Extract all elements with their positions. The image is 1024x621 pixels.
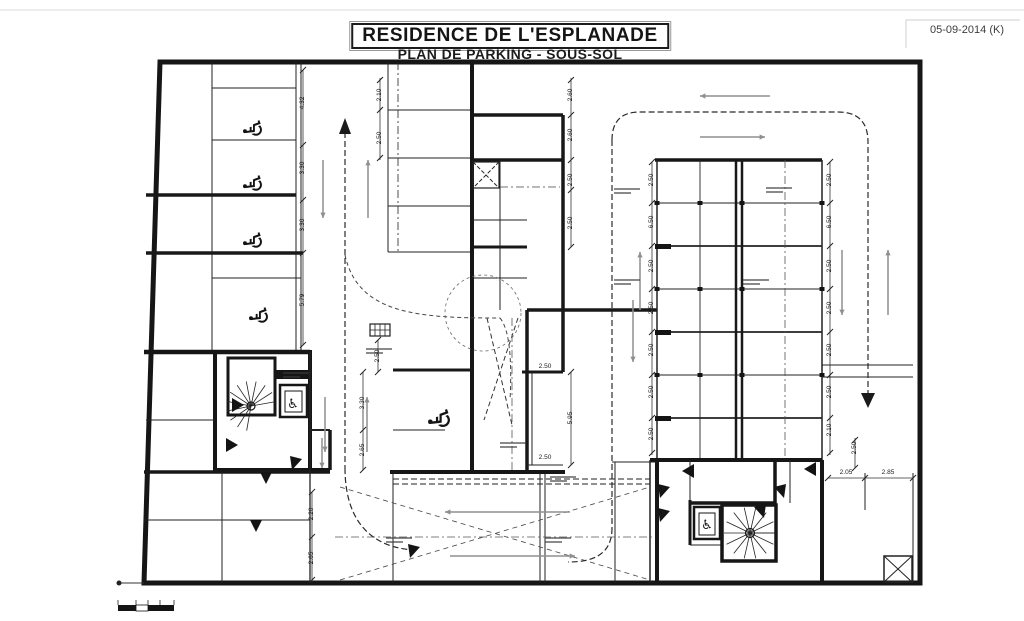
door-swing — [226, 438, 238, 452]
dimension-label: 2.85 — [882, 470, 895, 477]
wheelchair-icon: ♿ — [239, 228, 269, 251]
dimension-label: 2.10 — [377, 89, 384, 102]
direction-arrowhead — [839, 310, 844, 315]
direction-arrowhead — [319, 463, 324, 468]
dimension-label: 2.50 — [539, 364, 552, 371]
dimension-label: 2.50 — [827, 386, 834, 399]
bottom-ramp-zone — [335, 460, 657, 583]
floor-drain-grate — [370, 324, 390, 336]
dimension-label: 2.50 — [852, 442, 859, 455]
direction-arrowhead — [630, 357, 635, 362]
dimension-label: 2.50 — [649, 428, 656, 441]
dimension-label: 5.95 — [568, 412, 575, 425]
dimension-label: 2.50 — [649, 302, 656, 315]
dimension-label: 2.65 — [309, 552, 316, 565]
dimension-label: 2.50 — [568, 174, 575, 187]
dimension-label: 3.30 — [300, 162, 307, 175]
dimension-label: 6.50 — [649, 216, 656, 229]
door-swing — [290, 456, 302, 470]
wheelchair-icon: ♿ — [245, 303, 275, 326]
dimension-label: 2.50 — [568, 217, 575, 230]
direction-arrowhead — [570, 553, 575, 558]
wheelchair-icon: ♿ — [423, 405, 458, 432]
direction-arrowhead — [885, 250, 890, 255]
left-parking-stalls — [144, 62, 310, 352]
door-swing — [658, 508, 670, 522]
door-swing — [804, 462, 816, 476]
dimension-label: 3.30 — [360, 397, 367, 410]
dimension-label: 2.10 — [827, 424, 834, 437]
direction-arrowhead — [320, 213, 325, 218]
annotation-smudges — [283, 188, 792, 542]
dimension-label: 2.60 — [568, 129, 575, 142]
dimension-label: 2.20 — [309, 508, 316, 521]
door-swing — [682, 464, 694, 478]
dimension-label: 2.50 — [377, 132, 384, 145]
dimension-label: 2.60 — [568, 89, 575, 102]
dimension-label: 2.50 — [827, 344, 834, 357]
dimension-label: 2.50 — [649, 344, 656, 357]
dimension-label: 2.50 — [827, 302, 834, 315]
direction-arrowhead — [700, 93, 705, 98]
dimension-label: 3.30 — [300, 219, 307, 232]
door-swing — [260, 472, 272, 484]
scale-bar — [118, 600, 174, 611]
central-core-walls — [472, 115, 657, 472]
survey-point — [117, 581, 122, 586]
dimension-label: 2.50 — [375, 350, 382, 363]
dimension-label: 2.65 — [360, 444, 367, 457]
path-arrowhead-down — [861, 393, 875, 408]
dimension-label: 2.50 — [827, 174, 834, 187]
bottom-right-core — [650, 460, 822, 583]
dimension-label: 6.50 — [827, 216, 834, 229]
direction-arrowhead — [322, 447, 327, 452]
direction-arrowhead — [445, 509, 450, 514]
scanned-floor-plan-page: RESIDENCE DE L'ESPLANADE PLAN DE PARKING… — [0, 0, 1024, 621]
direction-arrowhead — [637, 252, 642, 257]
dimension-label: 4.32 — [300, 97, 307, 110]
dimension-label: 2.50 — [649, 260, 656, 273]
bottom-left-rooms — [144, 352, 330, 583]
door-swing — [658, 484, 670, 498]
dimension-label: 2.50 — [827, 260, 834, 273]
driving-path — [339, 112, 875, 562]
dimension-label: 2.50 — [539, 455, 552, 462]
direction-arrows — [319, 93, 890, 558]
outer-wall — [117, 62, 921, 586]
dimension-label: 2.50 — [649, 386, 656, 399]
wheelchair-icon: ♿ — [287, 397, 299, 412]
wheelchair-icon: ♿ — [239, 116, 269, 139]
path-arrowhead-up — [339, 118, 351, 134]
scan-artifacts — [0, 10, 1024, 48]
wheelchair-icon: ♿ — [239, 171, 269, 194]
door-swing — [250, 520, 262, 532]
door-swing — [408, 544, 420, 558]
right-parking-grid — [655, 160, 825, 460]
center-parking-stalls — [388, 62, 565, 472]
floor-plan-drawing: ♿ ♿ ♿ ♿ ♿ ♿ ♿ — [0, 0, 1024, 621]
dimension-label: 2.50 — [649, 174, 656, 187]
spiral-staircase-icon — [724, 508, 776, 559]
dimension-label: 5.79 — [300, 294, 307, 307]
wheelchair-icon: ♿ — [701, 518, 713, 533]
dimension-label: 2.05 — [840, 470, 853, 477]
direction-arrowhead — [760, 134, 765, 139]
direction-arrowhead — [365, 160, 370, 165]
